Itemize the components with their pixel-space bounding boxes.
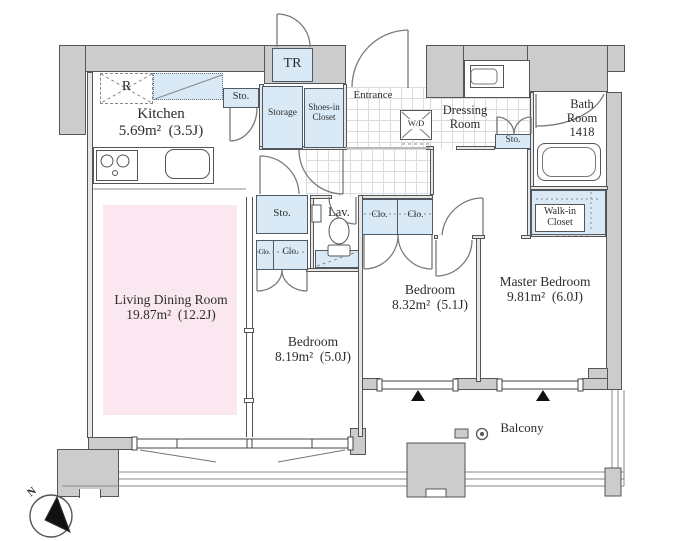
walk-in-closet-label: Walk-in Closet — [535, 206, 585, 228]
triangle-marker-2 — [536, 390, 550, 401]
dashed-lines — [101, 74, 601, 266]
sto-hall-label: Sto. — [256, 207, 308, 219]
window-opening-lines — [140, 450, 345, 462]
master-bedroom-name: Master Bedroom — [480, 274, 610, 289]
walkin-line2: Closet — [535, 217, 585, 228]
storage-label: Storage — [262, 108, 303, 119]
bath-size: 1418 — [554, 125, 610, 139]
compass-icon — [30, 495, 72, 537]
clo-hall-door-arcs — [257, 270, 307, 291]
dressing-label: Dressing Room — [430, 103, 500, 131]
clo-hall-label: Clo. — [274, 247, 307, 258]
shoes-closet-label: Shoes-in Closet — [303, 102, 345, 122]
living-dining-name: Living Dining Room — [96, 292, 246, 307]
bedroom-b-area: 8.32m² (5.1J) — [372, 297, 488, 312]
master-door-arc — [442, 198, 483, 235]
balcony-utility-notch — [426, 489, 446, 497]
balcony-railing — [62, 390, 624, 486]
sto-kitchen-label: Sto. — [223, 91, 259, 103]
balcony-fixtures — [407, 429, 621, 498]
clo-bedroom-right-label: Clo. — [398, 210, 433, 221]
bedroom-b-door-arc — [436, 240, 472, 276]
bedroom-a-area: 8.19m² (5.0J) — [258, 349, 368, 364]
sto-dressing-door-arcs — [497, 117, 531, 134]
counter-hatch-diagonal — [155, 75, 222, 99]
sto-hall-door-arc — [260, 156, 299, 194]
toilet-tank — [328, 245, 350, 256]
window-markers — [411, 390, 550, 401]
living-dining-label: Living Dining Room 19.87m² (12.2J) — [96, 292, 246, 322]
master-bedroom-label: Master Bedroom 9.81m² (6.0J) — [480, 274, 610, 304]
refrigerator-label: R — [100, 79, 153, 95]
kitchen-name: Kitchen — [86, 106, 236, 123]
dressing-line2: Room — [430, 117, 500, 131]
toilet-bowl — [329, 218, 349, 244]
entrance-label: Entrance — [344, 89, 402, 101]
stove-burner-2 — [117, 155, 129, 167]
triangle-marker-1 — [411, 390, 425, 401]
walkin-line1: Walk-in — [535, 206, 585, 217]
hose-bib-box — [455, 429, 468, 438]
shoes-line2: Closet — [303, 112, 345, 122]
bedroom-a-label: Bedroom 8.19m² (5.0J) — [258, 334, 368, 364]
lav-label: Lav. — [320, 205, 358, 219]
clo-bedroom-door-arcs — [364, 235, 432, 269]
entrance-door-arc — [352, 30, 408, 88]
stove-burner-3 — [113, 171, 118, 176]
kitchen-label: Kitchen 5.69m² (3.5J) — [86, 106, 236, 140]
trunk-room-label: TR — [272, 56, 313, 72]
clo-hall-small-label: Clo. — [256, 249, 273, 257]
kitchen-area: 5.69m² (3.5J) — [86, 123, 236, 140]
clo-bedroom-left-label: Clo. — [362, 210, 397, 221]
bedroom-b-name: Bedroom — [372, 282, 488, 297]
washer-dryer-label: W/D — [402, 119, 430, 129]
master-bedroom-area: 9.81m² (6.0J) — [480, 289, 610, 304]
drain-box — [605, 468, 621, 496]
floor-plan: Kitchen 5.69m² (3.5J) Living Dining Room… — [0, 0, 687, 541]
stove-burner-1 — [101, 155, 113, 167]
hall-door-arc — [299, 150, 343, 194]
shoes-line1: Shoes-in — [303, 102, 345, 112]
dressing-line1: Dressing — [430, 103, 500, 117]
tr-door-arc — [277, 14, 310, 47]
bath-label: Bath Room 1418 — [554, 97, 610, 139]
bath-line1: Bath — [554, 97, 610, 111]
bedroom-b-label: Bedroom 8.32m² (5.1J) — [372, 282, 488, 312]
living-dining-area: 19.87m² (12.2J) — [96, 307, 246, 322]
bedroom-a-name: Bedroom — [258, 334, 368, 349]
balcony-label: Balcony — [490, 421, 554, 436]
sto-dressing-label: Sto. — [495, 135, 531, 146]
bath-line2: Room — [554, 111, 610, 125]
